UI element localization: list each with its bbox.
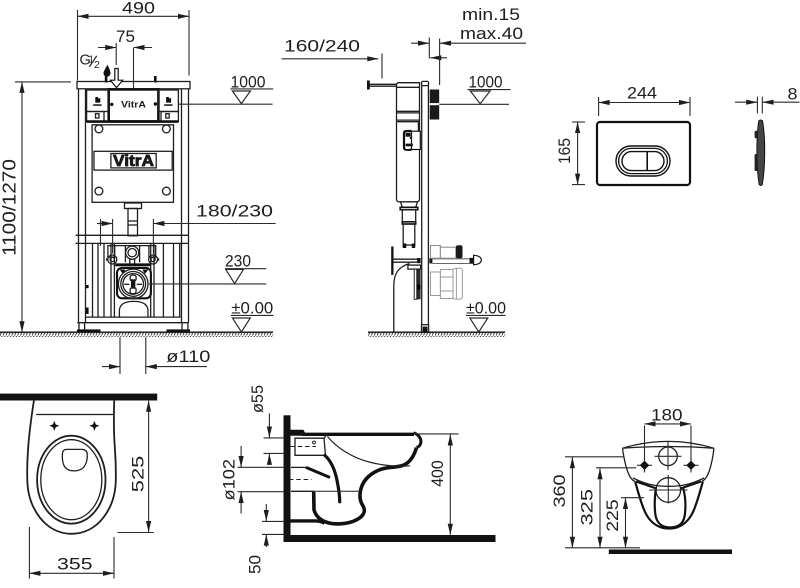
svg-text:400: 400 — [429, 460, 447, 487]
svg-text:2: 2 — [94, 59, 100, 71]
svg-text:±0.00: ±0.00 — [466, 299, 506, 317]
svg-text:165: 165 — [556, 138, 574, 164]
svg-text:490: 490 — [122, 0, 155, 18]
svg-text:VitrA: VitrA — [121, 99, 146, 110]
svg-text:355: 355 — [57, 556, 93, 574]
svg-text:525: 525 — [130, 456, 148, 493]
svg-text:180/230: 180/230 — [196, 203, 273, 221]
svg-text:225: 225 — [604, 499, 622, 532]
svg-text:75: 75 — [116, 28, 135, 46]
svg-text:360: 360 — [551, 475, 569, 508]
svg-text:180: 180 — [651, 406, 683, 424]
svg-text:±0.00: ±0.00 — [231, 299, 273, 317]
svg-text:ø102: ø102 — [221, 459, 239, 501]
svg-text:ø110: ø110 — [166, 348, 210, 366]
svg-text:1100/1270: 1100/1270 — [0, 159, 20, 256]
svg-text:160/240: 160/240 — [284, 37, 360, 55]
svg-text:1000: 1000 — [231, 73, 266, 91]
svg-text:244: 244 — [627, 85, 657, 103]
svg-text:ø55: ø55 — [249, 385, 267, 413]
svg-text:min.15: min.15 — [462, 6, 520, 24]
svg-text:230: 230 — [225, 252, 251, 270]
svg-text:325: 325 — [578, 489, 596, 526]
svg-text:VitrA: VitrA — [113, 153, 154, 170]
svg-text:50: 50 — [247, 555, 265, 574]
svg-text:max.40: max.40 — [460, 25, 523, 43]
svg-text:1000: 1000 — [469, 73, 503, 91]
svg-text:8: 8 — [788, 86, 798, 104]
